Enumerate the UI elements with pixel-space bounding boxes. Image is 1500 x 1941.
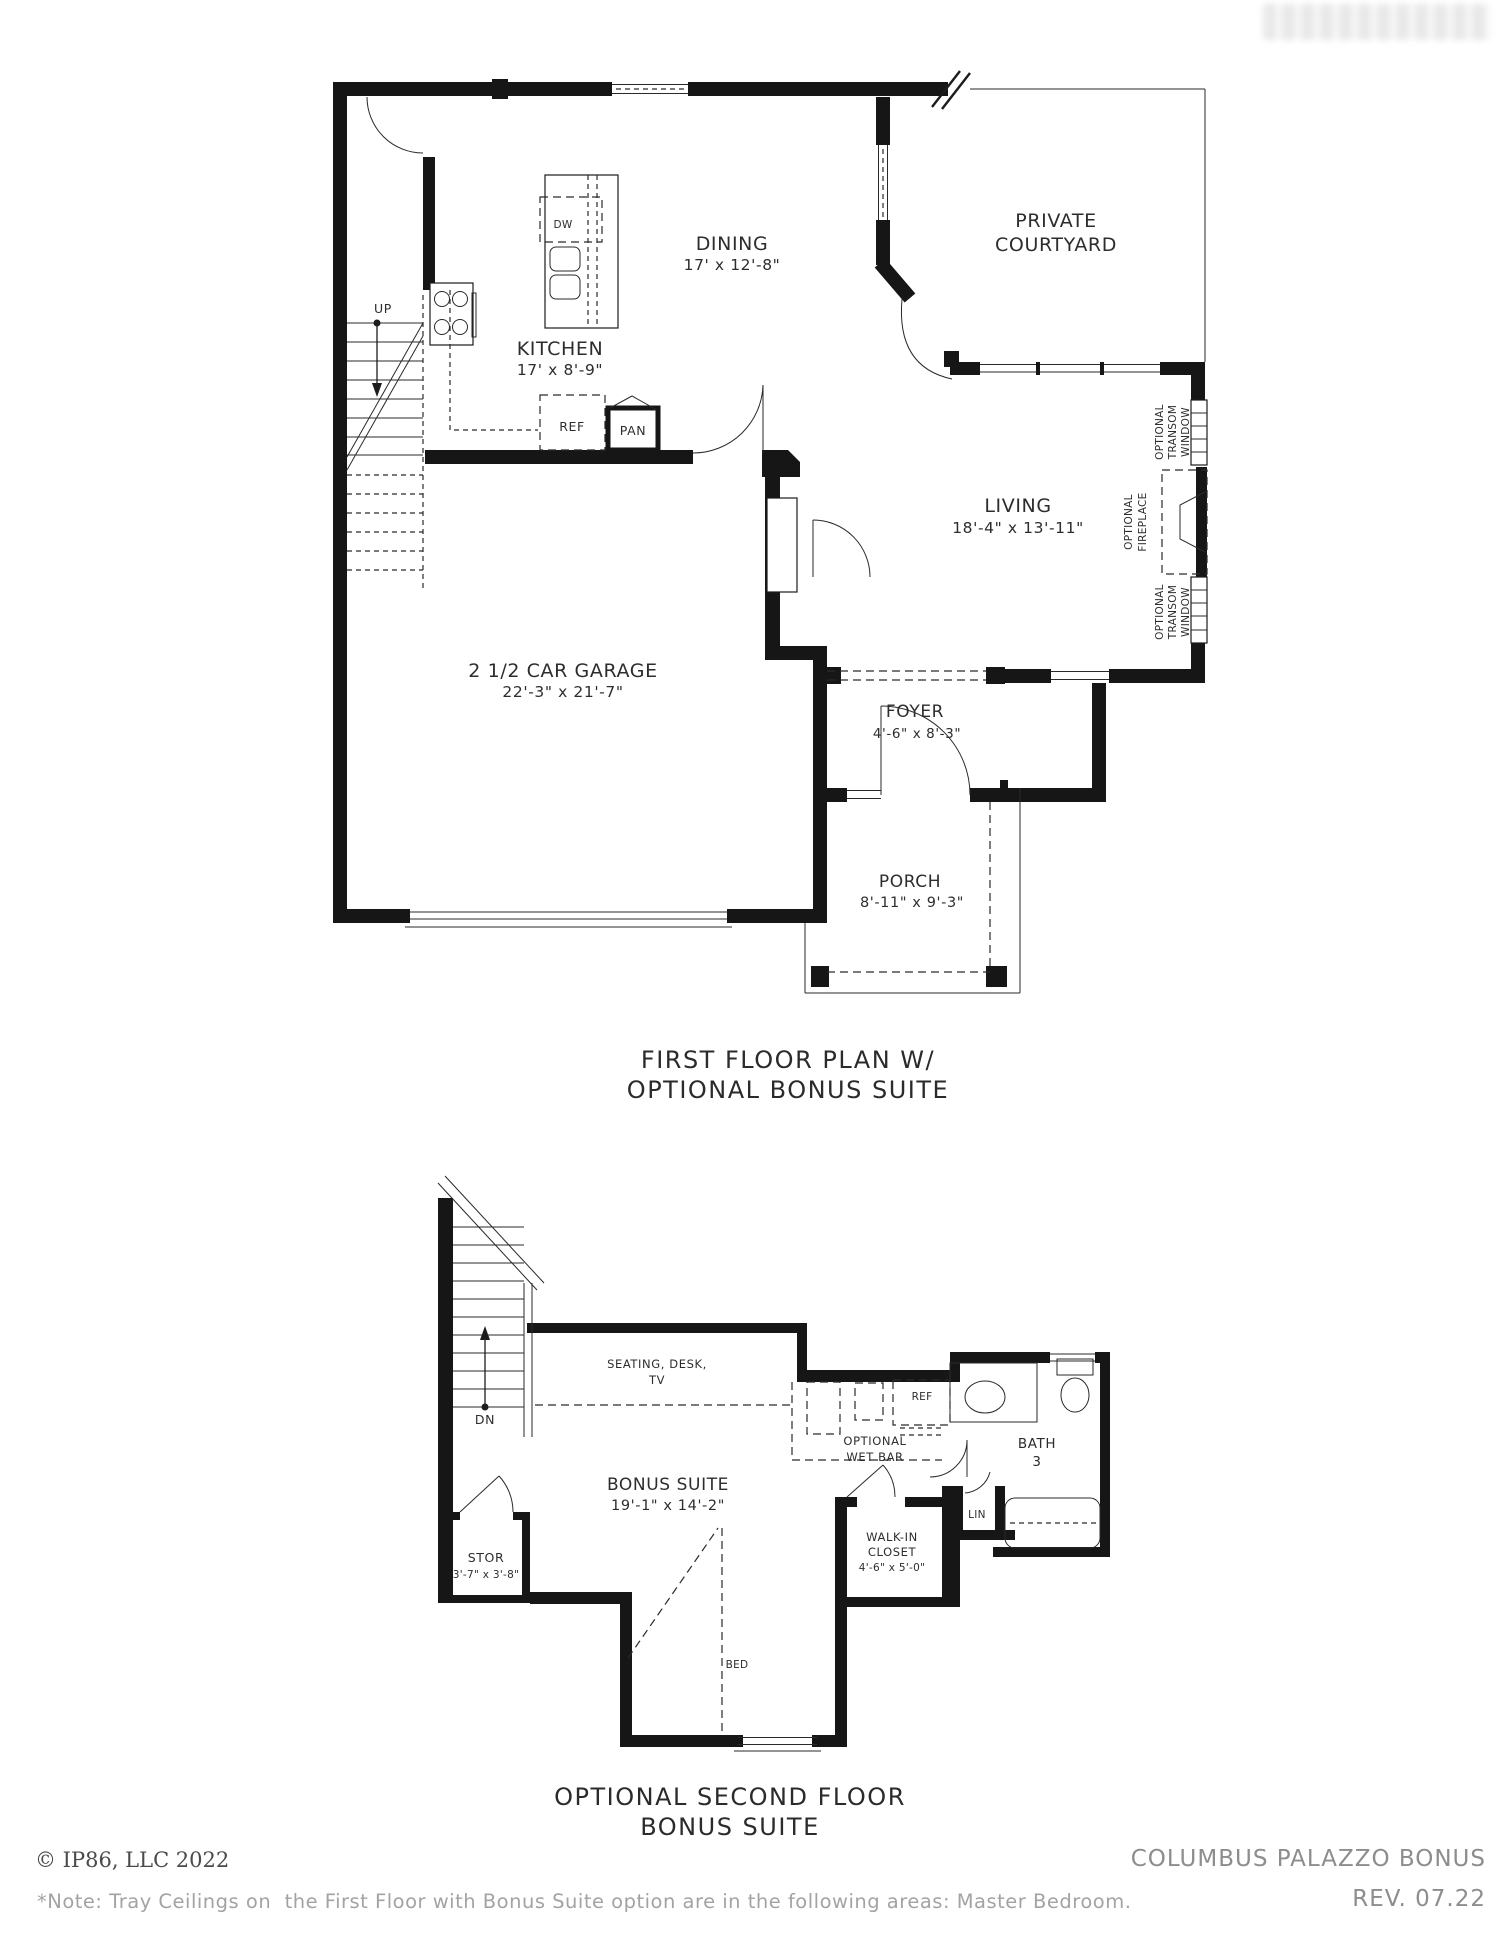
- walkin-dims: 4'-6" x 5'-0": [859, 1562, 926, 1574]
- fireplace-label-1: OPTIONAL: [1123, 494, 1135, 550]
- toilet-icon: [1057, 1359, 1093, 1412]
- stairs-down: [438, 1176, 544, 1437]
- foyer-room-dims: 4'-6" x 8'-3": [873, 726, 961, 742]
- transom-upper-label-2: TRANSOM: [1167, 405, 1179, 460]
- porch-room-dims: 8'-11" x 9'-3": [860, 895, 964, 911]
- dining-window: [607, 82, 693, 96]
- dn-label: DN: [475, 1412, 495, 1427]
- tray-ceiling-note: *Note: Tray Ceilings on the First Floor …: [37, 1890, 1131, 1913]
- transom-upper-label-1: OPTIONAL: [1154, 404, 1166, 460]
- bonus-suite-label: BONUS SUITE: [607, 1475, 729, 1495]
- walkin-label-line1: WALK-IN: [866, 1530, 918, 1544]
- transom-window-upper: [1191, 400, 1207, 465]
- transom-upper-label-3: WINDOW: [1180, 407, 1192, 457]
- ceiling-dashed-lines: [535, 1382, 942, 1460]
- living-room-label: LIVING: [984, 495, 1051, 517]
- corner-watermark: [1263, 4, 1491, 40]
- bonus-suite-dims: 19'-1" x 14'-2": [611, 1498, 725, 1514]
- stove-icon: [430, 283, 476, 345]
- floor-plan-page: { "page": { "first_floor_plan": { "title…: [0, 0, 1500, 1941]
- foyer-sidelight-window: [843, 788, 881, 802]
- transom-lower-label-3: WINDOW: [1180, 587, 1192, 637]
- foyer-room-label: FOYER: [886, 702, 944, 722]
- copyright-text: © IP86, LLC 2022: [35, 1848, 229, 1872]
- transom-lower-label-2: TRANSOM: [1167, 585, 1179, 640]
- bed-label: BED: [726, 1659, 749, 1671]
- plan-name-text: COLUMBUS PALAZZO BONUS: [1131, 1846, 1486, 1872]
- courtyard-label-line1: PRIVATE: [1015, 210, 1096, 232]
- stor-dims: 3'-7" x 3'-8": [453, 1569, 520, 1581]
- fireplace-label-2: FIREPLACE: [1137, 492, 1149, 551]
- refrigerator-label: REF: [559, 419, 585, 434]
- linen-label: LIN: [968, 1509, 986, 1521]
- first-floor-title: FIRST FLOOR PLAN W/ OPTIONAL BONUS SUITE: [538, 1045, 1038, 1105]
- dining-room-label: DINING: [696, 233, 769, 255]
- first-floor-title-line1: FIRST FLOOR PLAN W/: [538, 1045, 1038, 1075]
- living-room-dims: 18'-4" x 13'-11": [952, 519, 1084, 537]
- bed-dashed-outline: [628, 1528, 722, 1733]
- kitchen-room-dims: 17' x 8'-9": [517, 361, 603, 379]
- pantry-label: PAN: [620, 423, 646, 438]
- wetbar-label-line2: WET BAR: [846, 1450, 903, 1464]
- second-floor-walls: [438, 1198, 1110, 1751]
- dishwasher-label: DW: [553, 219, 572, 231]
- stor-label: STOR: [468, 1550, 505, 1565]
- bath-sink-counter: [950, 1363, 1037, 1422]
- wetbar-ref-label: REF: [912, 1391, 933, 1403]
- courtyard-side-window: [876, 140, 890, 225]
- first-floor-title-line2: OPTIONAL BONUS SUITE: [538, 1075, 1038, 1105]
- seating-desk-label-line1: SEATING, DESK,: [607, 1357, 707, 1371]
- bath-label: BATH: [1018, 1436, 1056, 1452]
- living-window: [1047, 669, 1113, 683]
- foyer-opening-dashed: [827, 671, 986, 680]
- revision-text: REV. 07.22: [1352, 1886, 1486, 1912]
- bathtub-icon: [1005, 1498, 1100, 1548]
- walkin-label-line2: CLOSET: [868, 1545, 917, 1559]
- dining-room-dims: 17' x 12'-8": [684, 256, 781, 274]
- stairs-up: [347, 295, 423, 590]
- seating-desk-label-line2: TV: [648, 1373, 665, 1387]
- wetbar-label-line1: OPTIONAL: [843, 1434, 906, 1448]
- second-floor-title-line1: OPTIONAL SECOND FLOOR: [480, 1782, 980, 1812]
- courtyard-label-line2: COURTYARD: [995, 234, 1117, 256]
- wet-bar-cabinets: [807, 1380, 950, 1435]
- bath-number-label: 3: [1032, 1454, 1041, 1470]
- bed-nook-window: [734, 1735, 821, 1751]
- up-label: UP: [374, 301, 392, 316]
- kitchen-island: [540, 175, 618, 328]
- transom-window-lower: [1191, 577, 1207, 643]
- porch-room-label: PORCH: [879, 872, 941, 892]
- first-floor-plan-drawing: DINING 17' x 12'-8" PRIVATE COURTYARD KI…: [320, 55, 1240, 1015]
- garage-room-dims: 22'-3" x 21'-7": [502, 683, 623, 701]
- second-floor-title-line2: BONUS SUITE: [480, 1812, 980, 1842]
- garage-room-label: 2 1/2 CAR GARAGE: [468, 660, 657, 682]
- second-floor-title: OPTIONAL SECOND FLOOR BONUS SUITE: [480, 1782, 980, 1842]
- courtyard-window: [975, 362, 1165, 375]
- transom-lower-label-1: OPTIONAL: [1154, 584, 1166, 640]
- kitchen-room-label: KITCHEN: [517, 338, 604, 360]
- second-floor-plan-drawing: BONUS SUITE 19'-1" x 14'-2" SEATING, DES…: [420, 1160, 1140, 1780]
